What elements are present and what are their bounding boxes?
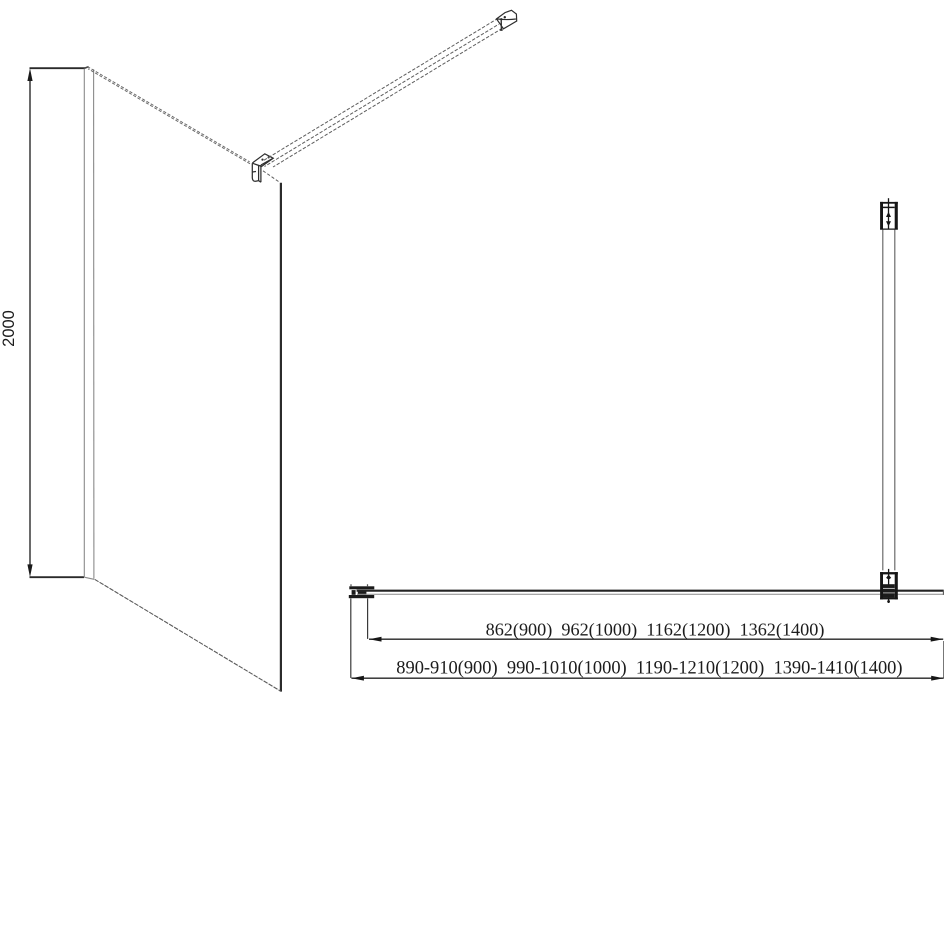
svg-text:890-910(900) 990-1010(1000): 890-910(900) 990-1010(1000) 1190-1210(12… — [396, 657, 902, 678]
svg-text:2000: 2000 — [0, 310, 18, 347]
svg-text:862(900) 962(1000) 1162(1200: 862(900) 962(1000) 1162(1200) 1362(1400) — [486, 619, 825, 640]
